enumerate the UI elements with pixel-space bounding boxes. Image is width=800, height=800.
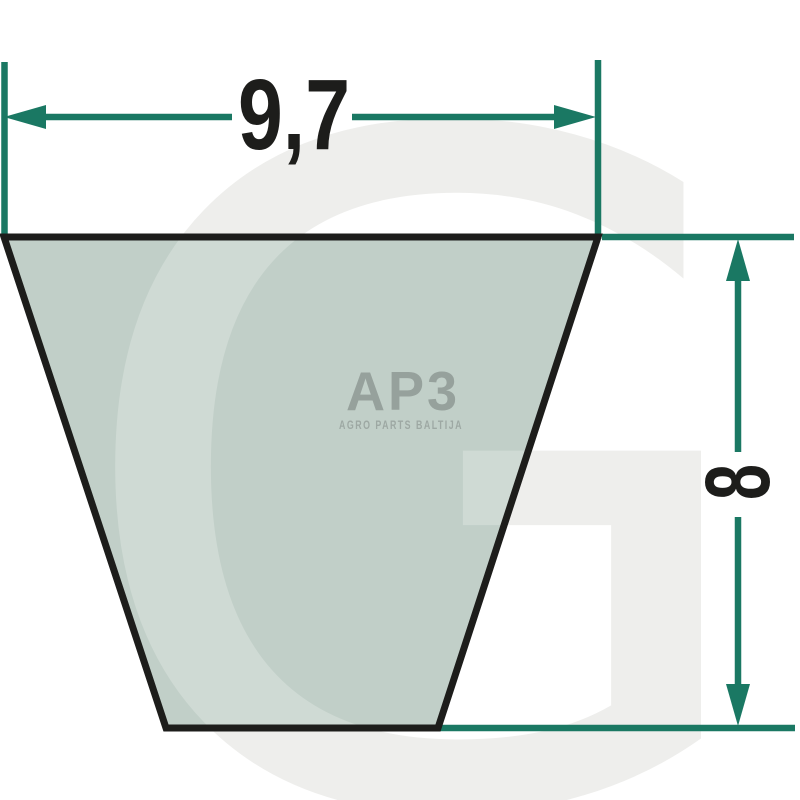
- width-dimension-value: 9,7: [238, 59, 350, 171]
- brand-logo-subtitle: AGRO PARTS BALTIJA: [339, 418, 463, 432]
- width-arrow-left-icon: [4, 105, 46, 129]
- brand-logo: AP3 AGRO PARTS BALTIJA: [339, 360, 463, 432]
- brand-logo-text: AP3: [346, 360, 460, 422]
- belt-diagram-canvas: G AP3 AGRO PARTS BALTIJA: [0, 0, 800, 800]
- belt-diagram: G AP3 AGRO PARTS BALTIJA: [0, 0, 800, 800]
- height-dimension-value: 8: [687, 464, 789, 500]
